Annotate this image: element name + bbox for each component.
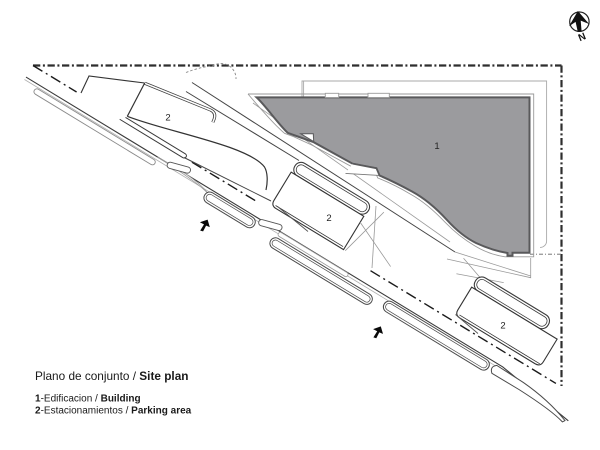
svg-text:2: 2: [500, 321, 505, 332]
svg-text:Plano de conjunto / Site plan: Plano de conjunto / Site plan: [35, 369, 188, 383]
svg-text:2: 2: [165, 113, 170, 124]
svg-text:2: 2: [326, 213, 331, 224]
svg-text:1-Edificacion / Building: 1-Edificacion / Building: [35, 394, 141, 405]
svg-text:2-Estacionamientos / Parking a: 2-Estacionamientos / Parking area: [35, 406, 192, 417]
svg-text:1: 1: [434, 141, 439, 152]
svg-text:N: N: [577, 31, 588, 44]
